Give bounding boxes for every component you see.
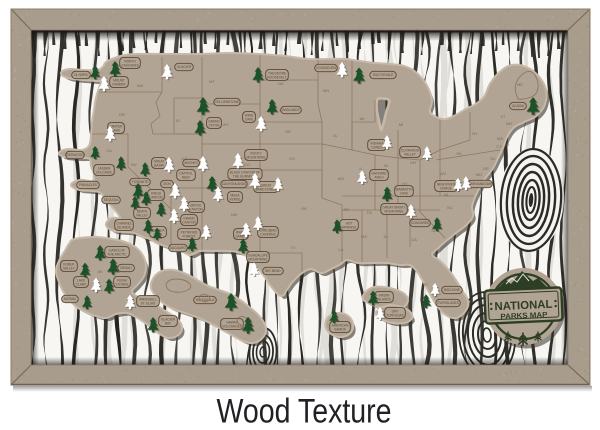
svg-text:ACADIA: ACADIA (512, 104, 525, 108)
svg-text:VOLCANIC: VOLCANIC (96, 170, 113, 174)
svg-text:IA: IA (333, 133, 337, 138)
svg-text:MI: MI (399, 122, 403, 127)
svg-text:AL: AL (384, 234, 390, 239)
svg-text:RAINIER: RAINIER (113, 82, 127, 86)
svg-text:CASCADES: CASCADES (121, 63, 139, 67)
svg-text:OK: OK (301, 206, 307, 211)
svg-text:OR: OR (119, 112, 125, 117)
svg-text:BIG BEND: BIG BEND (265, 269, 281, 273)
svg-text:ZION: ZION (163, 182, 171, 186)
svg-text:Wood Texture: Wood Texture (216, 392, 391, 430)
svg-text:FJORDS: FJORDS (116, 282, 129, 286)
svg-text:MA: MA (497, 136, 503, 141)
svg-text:AK: AK (97, 269, 103, 274)
svg-text:TETON: TETON (209, 123, 220, 127)
svg-text:BADLANDS: BADLANDS (282, 108, 299, 112)
svg-text:CANYON: CANYON (189, 207, 203, 211)
svg-text:NH: NH (506, 121, 512, 126)
svg-text:MD: MD (476, 172, 482, 177)
svg-text:KS: KS (289, 156, 295, 161)
svg-text:VALLEY: VALLEY (404, 152, 417, 156)
svg-text:SAGUARO: SAGUARO (170, 246, 186, 250)
svg-text:EVERGLADES: EVERGLADES (437, 301, 459, 305)
svg-text:VOYAGEURS: VOYAGEURS (316, 66, 336, 70)
svg-text:REEF: REEF (182, 175, 191, 179)
svg-text:ST. ELIAS: ST. ELIAS (141, 301, 156, 305)
svg-text:FOREST: FOREST (183, 234, 196, 238)
svg-text:MOUNTAINS: MOUNTAINS (249, 257, 268, 261)
svg-text:WI: WI (360, 116, 365, 121)
svg-text:TORTUGAS: TORTUGAS (386, 313, 404, 317)
svg-text:ID: ID (176, 118, 180, 123)
svg-text:SEQUOIA: SEQUOIA (104, 198, 119, 202)
svg-text:REDWOOD: REDWOOD (67, 153, 85, 157)
svg-text:TN: TN (366, 210, 371, 215)
svg-text:ISLE ROYALE: ISLE ROYALE (373, 73, 394, 77)
svg-text:YELLOWSTONE: YELLOWSTONE (215, 100, 239, 104)
svg-text:VA: VA (443, 192, 448, 197)
svg-text:CAVE: CAVE (400, 191, 408, 195)
svg-text:VT: VT (500, 114, 506, 119)
svg-text:PA: PA (456, 151, 461, 156)
svg-text:MT: MT (209, 79, 215, 84)
svg-text:WY: WY (223, 122, 230, 127)
svg-text:CAVE: CAVE (245, 117, 253, 121)
svg-text:GA: GA (411, 237, 417, 242)
svg-text:DE: DE (483, 166, 489, 171)
svg-text:SAMOA: SAMOA (334, 327, 346, 331)
svg-text:ND: ND (278, 81, 284, 86)
svg-text:VALLEY: VALLEY (136, 213, 149, 217)
svg-text:SAND DUNES: SAND DUNES (256, 187, 277, 191)
svg-text:OLYMPIC: OLYMPIC (74, 73, 89, 77)
svg-text:OH: OH (410, 160, 416, 165)
svg-text:RI: RI (505, 142, 509, 147)
svg-text:DUNES: DUNES (371, 145, 382, 149)
svg-text:FL: FL (424, 282, 429, 287)
svg-text:CLARK: CLARK (76, 282, 88, 286)
svg-text:YOSEMITE: YOSEMITE (132, 180, 148, 184)
svg-text:MO: MO (338, 176, 344, 181)
svg-text:ISLANDS: ISLANDS (377, 297, 391, 301)
svg-text:BISCAYNE: BISCAYNE (444, 288, 460, 292)
svg-text:CA: CA (106, 148, 112, 153)
svg-text:TX: TX (290, 245, 295, 250)
svg-text:DENALI: DENALI (120, 266, 132, 270)
svg-text:NE: NE (285, 129, 291, 134)
svg-text:MN: MN (323, 88, 329, 93)
svg-text:NC: NC (447, 205, 453, 210)
svg-text:ISLANDS: ISLANDS (117, 225, 131, 229)
svg-text:IN: IN (384, 163, 388, 168)
svg-text:ARCH: ARCH (374, 175, 384, 179)
svg-text:NY: NY (472, 131, 478, 136)
svg-text:WV: WV (440, 171, 447, 176)
svg-text:ROOSEVELT: ROOSEVELT (267, 75, 286, 79)
svg-text:CANYON: CANYON (149, 195, 163, 199)
svg-text:CANYON: CANYON (182, 220, 196, 224)
svg-text:VERDE: VERDE (230, 197, 241, 201)
svg-text:VOLCANOES: VOLCANOES (222, 324, 242, 328)
svg-text:MOUNTAINS: MOUNTAINS (247, 155, 266, 159)
svg-text:BASIN: BASIN (154, 163, 164, 167)
svg-text:CONGAREE: CONGAREE (411, 221, 429, 225)
svg-text:VALLEY: VALLEY (63, 266, 76, 270)
svg-text:LA: LA (339, 247, 344, 252)
svg-text:WA: WA (137, 83, 144, 88)
svg-text:SHENANDOAH: SHENANDOAH (469, 182, 492, 186)
svg-text:MOUNTAINS: MOUNTAINS (385, 209, 404, 213)
svg-text:AR: AR (343, 207, 349, 212)
svg-text:NM: NM (231, 212, 237, 217)
svg-text:CT: CT (496, 144, 502, 149)
svg-text:PINNACLES: PINNACLES (79, 183, 97, 187)
svg-text:ME: ME (517, 82, 523, 87)
svg-text:BAY: BAY (165, 321, 172, 325)
svg-text:SPRINGS: SPRINGS (342, 225, 356, 229)
svg-text:NJ: NJ (491, 156, 496, 161)
svg-text:KATMAI: KATMAI (64, 297, 76, 301)
svg-text:THE ARCTIC: THE ARCTIC (108, 252, 128, 256)
svg-text:NV: NV (131, 162, 137, 167)
svg-text:MS: MS (361, 234, 367, 239)
svg-text:CO: CO (244, 162, 250, 167)
svg-text:CANYONLANDS: CANYONLANDS (222, 182, 246, 186)
svg-text:CAVERNS: CAVERNS (260, 232, 275, 236)
svg-text:GLACIER: GLACIER (177, 65, 192, 69)
svg-text:GORGE: GORGE (440, 186, 452, 190)
svg-text:ARCHES: ARCHES (184, 161, 197, 165)
